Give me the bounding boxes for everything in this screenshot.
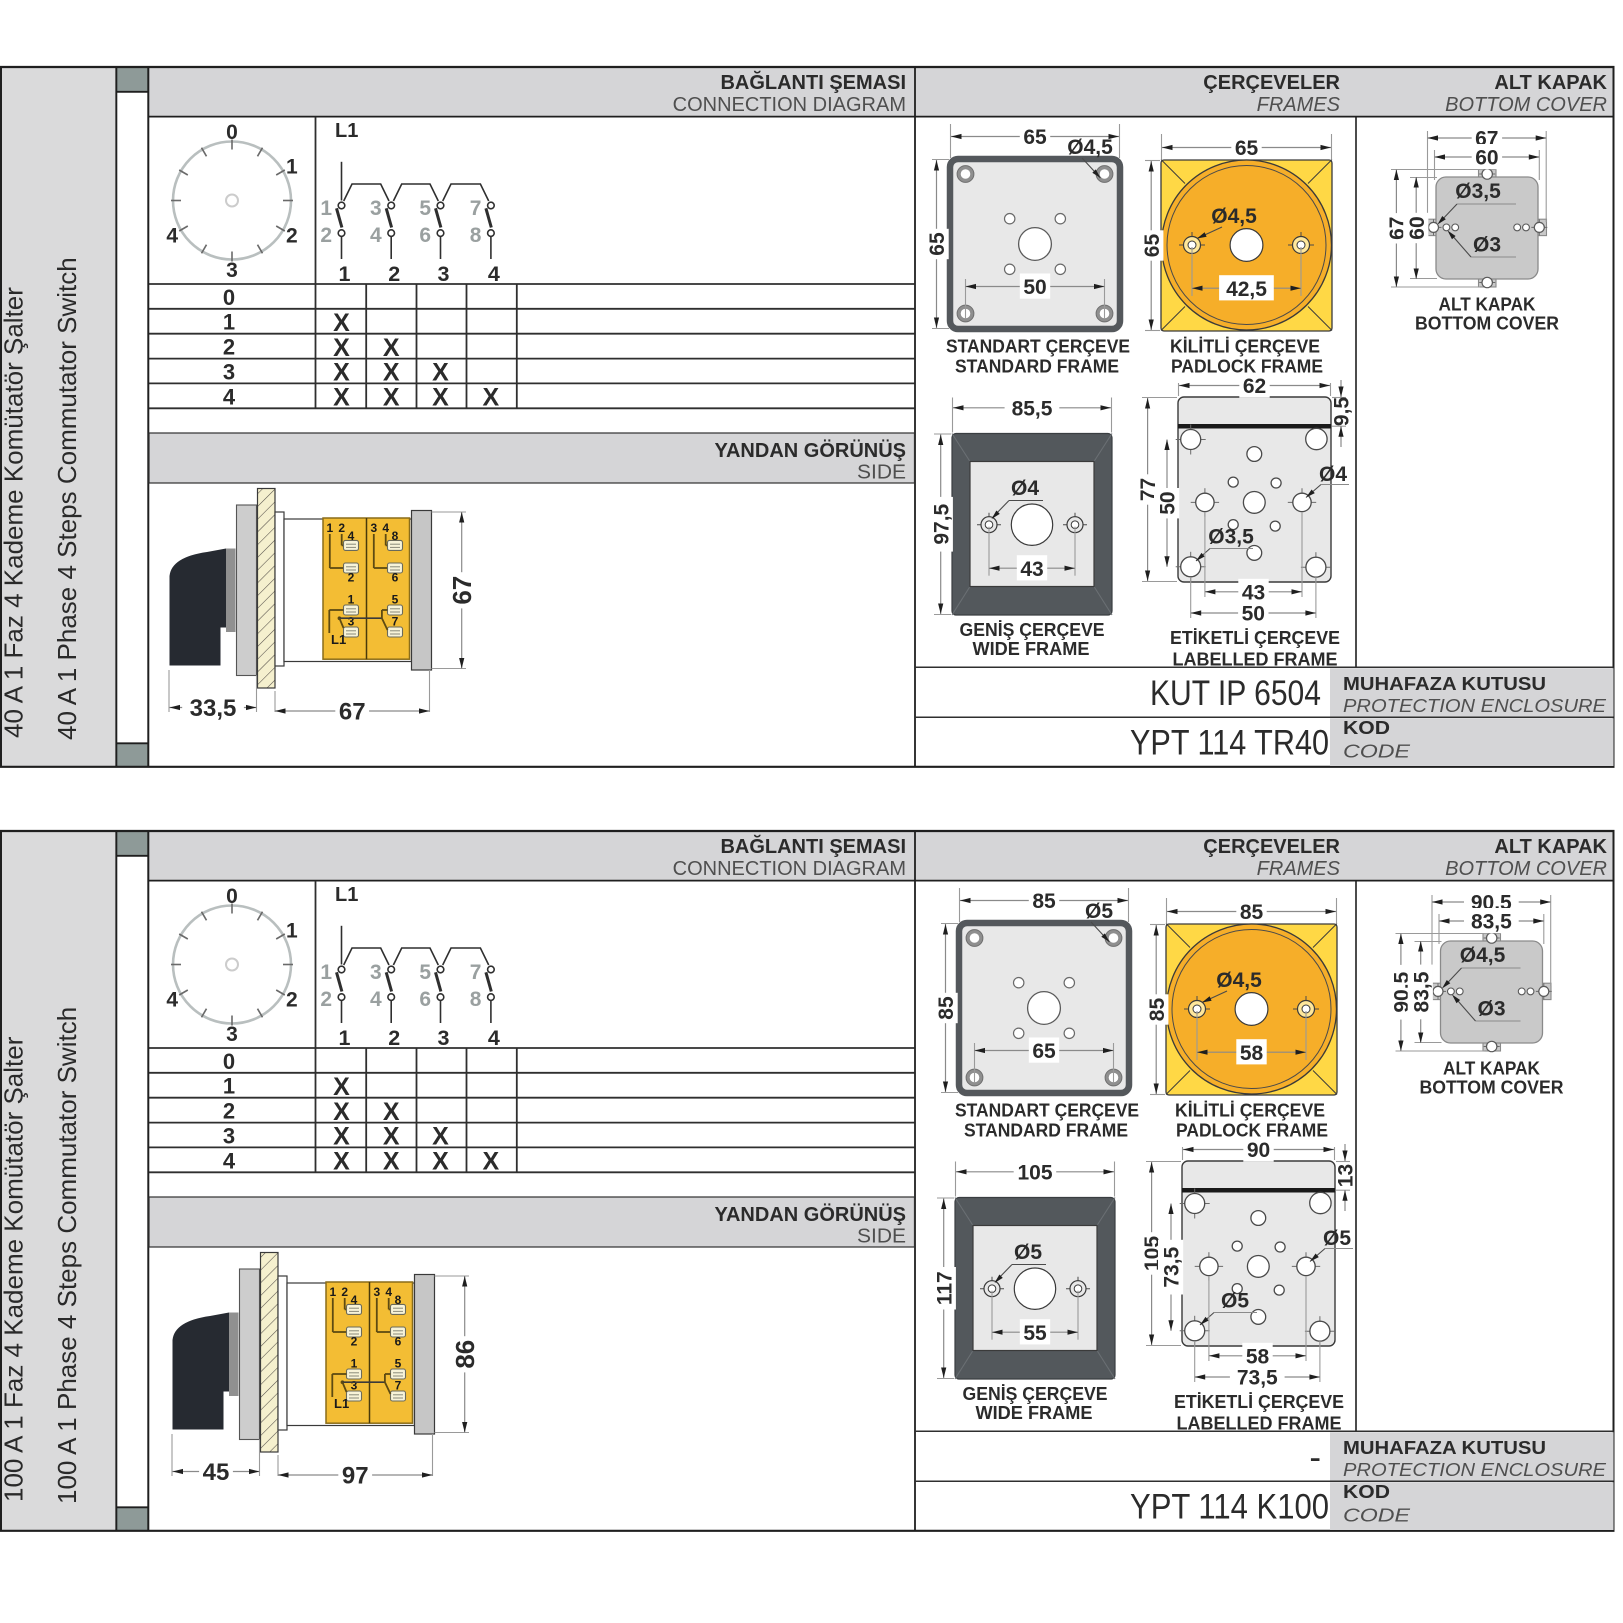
svg-text:2: 2 xyxy=(388,1026,400,1050)
svg-text:X: X xyxy=(333,1148,350,1176)
svg-text:ÇERÇEVELER: ÇERÇEVELER xyxy=(1203,72,1340,94)
svg-text:2: 2 xyxy=(341,1285,348,1299)
svg-text:50: 50 xyxy=(1157,491,1180,514)
svg-text:-: - xyxy=(1309,1438,1321,1477)
svg-text:YPT 114 K100: YPT 114 K100 xyxy=(1130,1488,1329,1527)
svg-text:65: 65 xyxy=(1141,234,1164,258)
svg-text:2: 2 xyxy=(320,988,332,1011)
svg-text:1: 1 xyxy=(286,156,298,179)
svg-text:Ø4: Ø4 xyxy=(1011,477,1039,500)
svg-text:CODE: CODE xyxy=(1343,1505,1411,1526)
svg-text:Ø4,5: Ø4,5 xyxy=(1211,205,1257,228)
svg-text:4: 4 xyxy=(385,1285,392,1299)
svg-text:4: 4 xyxy=(166,225,178,248)
svg-text:6: 6 xyxy=(419,988,431,1011)
svg-text:1: 1 xyxy=(348,593,355,607)
svg-text:Ø5: Ø5 xyxy=(1323,1227,1351,1250)
svg-text:2: 2 xyxy=(348,571,355,585)
svg-text:YPT 114 TR40: YPT 114 TR40 xyxy=(1130,724,1329,763)
svg-text:85: 85 xyxy=(1146,998,1169,1022)
svg-text:4: 4 xyxy=(370,988,382,1011)
svg-text:GENİŞ ÇERÇEVE: GENİŞ ÇERÇEVE xyxy=(960,620,1105,640)
svg-text:42,5: 42,5 xyxy=(1226,278,1267,301)
svg-text:3: 3 xyxy=(370,521,377,535)
svg-text:2: 2 xyxy=(223,335,235,360)
svg-text:X: X xyxy=(432,384,449,412)
svg-text:Ø4,5: Ø4,5 xyxy=(1067,136,1113,159)
svg-text:4: 4 xyxy=(223,1148,236,1173)
svg-text:1: 1 xyxy=(286,920,298,943)
svg-text:1: 1 xyxy=(223,1074,235,1099)
svg-text:97,5: 97,5 xyxy=(930,503,953,544)
svg-text:MUHAFAZA KUTUSU: MUHAFAZA KUTUSU xyxy=(1343,1438,1546,1458)
svg-text:4: 4 xyxy=(488,1026,500,1050)
svg-text:Ø3: Ø3 xyxy=(1473,234,1501,257)
svg-text:8: 8 xyxy=(470,224,482,247)
svg-text:6: 6 xyxy=(392,571,399,585)
svg-text:1: 1 xyxy=(339,262,351,286)
svg-text:40 A 1 Phase 4 Steps Commutato: 40 A 1 Phase 4 Steps Commutator Switch xyxy=(52,257,82,740)
svg-text:BOTTOM COVER: BOTTOM COVER xyxy=(1445,858,1607,880)
svg-text:X: X xyxy=(333,1073,350,1101)
svg-text:6: 6 xyxy=(395,1335,402,1349)
svg-text:Ø4,5: Ø4,5 xyxy=(1216,969,1262,992)
svg-text:BOTTOM COVER: BOTTOM COVER xyxy=(1445,94,1607,116)
svg-text:8: 8 xyxy=(392,529,399,543)
svg-text:CONNECTION DIAGRAM: CONNECTION DIAGRAM xyxy=(673,858,906,880)
svg-text:WIDE FRAME: WIDE FRAME xyxy=(976,1403,1093,1423)
svg-text:43: 43 xyxy=(1020,558,1043,581)
svg-text:58: 58 xyxy=(1240,1042,1264,1065)
svg-text:62: 62 xyxy=(1243,375,1266,398)
svg-text:1: 1 xyxy=(223,310,235,335)
svg-text:FRAMES: FRAMES xyxy=(1257,94,1341,116)
svg-text:3: 3 xyxy=(373,1285,380,1299)
svg-text:67: 67 xyxy=(447,576,477,605)
svg-text:1: 1 xyxy=(326,521,333,535)
svg-text:3: 3 xyxy=(438,1026,450,1050)
svg-text:ALT KAPAK: ALT KAPAK xyxy=(1494,72,1607,94)
svg-text:CODE: CODE xyxy=(1343,741,1411,762)
svg-text:73,5: 73,5 xyxy=(1237,1367,1278,1390)
svg-text:65: 65 xyxy=(1032,1040,1056,1063)
svg-text:KOD: KOD xyxy=(1343,718,1390,738)
svg-text:0: 0 xyxy=(226,121,238,144)
svg-text:4: 4 xyxy=(348,529,355,543)
svg-text:100 A 1 Phase 4 Steps Commutat: 100 A 1 Phase 4 Steps Commutator Switch xyxy=(52,1007,82,1504)
svg-text:X: X xyxy=(383,1123,400,1151)
svg-text:3: 3 xyxy=(226,259,238,282)
svg-text:85: 85 xyxy=(935,996,958,1020)
svg-text:Ø4,5: Ø4,5 xyxy=(1460,944,1506,967)
svg-text:STANDARD FRAME: STANDARD FRAME xyxy=(964,1121,1128,1141)
svg-text:L1: L1 xyxy=(334,1396,349,1411)
svg-text:STANDART ÇERÇEVE: STANDART ÇERÇEVE xyxy=(955,1101,1139,1121)
svg-text:1: 1 xyxy=(351,1357,358,1371)
svg-text:67: 67 xyxy=(339,699,366,726)
svg-text:9,5: 9,5 xyxy=(1331,397,1354,427)
svg-text:60: 60 xyxy=(1406,216,1429,239)
svg-text:7: 7 xyxy=(470,197,482,220)
svg-text:ETİKETLİ ÇERÇEVE: ETİKETLİ ÇERÇEVE xyxy=(1170,628,1340,648)
svg-text:Ø5: Ø5 xyxy=(1221,1290,1249,1313)
svg-text:4: 4 xyxy=(370,224,382,247)
svg-text:1: 1 xyxy=(329,1285,336,1299)
svg-text:ALT KAPAK: ALT KAPAK xyxy=(1439,295,1536,315)
svg-text:85,5: 85,5 xyxy=(1012,397,1053,420)
svg-text:5: 5 xyxy=(419,197,431,220)
svg-text:X: X xyxy=(432,1123,449,1151)
svg-text:4: 4 xyxy=(166,989,178,1012)
svg-text:X: X xyxy=(432,359,449,387)
svg-text:7: 7 xyxy=(392,615,399,629)
svg-text:85: 85 xyxy=(1240,901,1264,924)
svg-text:1: 1 xyxy=(339,1026,351,1050)
svg-text:8: 8 xyxy=(470,988,482,1011)
svg-text:3: 3 xyxy=(226,1023,238,1046)
svg-text:PROTECTION ENCLOSURE: PROTECTION ENCLOSURE xyxy=(1343,695,1607,716)
svg-text:Ø5: Ø5 xyxy=(1014,1241,1042,1264)
svg-text:Ø5: Ø5 xyxy=(1085,900,1113,923)
svg-text:3: 3 xyxy=(438,262,450,286)
svg-text:85: 85 xyxy=(1032,890,1056,913)
svg-text:1: 1 xyxy=(320,961,332,984)
svg-text:BOTTOM COVER: BOTTOM COVER xyxy=(1420,1078,1564,1098)
svg-text:86: 86 xyxy=(450,1340,480,1369)
svg-text:KUT IP 6504: KUT IP 6504 xyxy=(1150,674,1321,713)
svg-text:ALT KAPAK: ALT KAPAK xyxy=(1443,1059,1540,1079)
svg-text:X: X xyxy=(483,1148,500,1176)
svg-text:WIDE FRAME: WIDE FRAME xyxy=(973,639,1090,659)
svg-text:65: 65 xyxy=(1235,137,1259,160)
svg-text:117: 117 xyxy=(933,1271,956,1305)
svg-text:97: 97 xyxy=(342,1463,369,1490)
svg-text:45: 45 xyxy=(203,1459,230,1486)
svg-text:13: 13 xyxy=(1335,1164,1358,1187)
svg-text:X: X xyxy=(333,1123,350,1151)
svg-text:55: 55 xyxy=(1023,1322,1047,1345)
svg-text:X: X xyxy=(383,1148,400,1176)
svg-text:100 A 1 Faz 4 Kademe Komütatör: 100 A 1 Faz 4 Kademe Komütatör Şalter xyxy=(0,1036,29,1502)
svg-text:0: 0 xyxy=(226,885,238,908)
svg-text:2: 2 xyxy=(320,224,332,247)
svg-text:FRAMES: FRAMES xyxy=(1257,858,1341,880)
svg-text:4: 4 xyxy=(223,384,236,409)
svg-text:GENİŞ ÇERÇEVE: GENİŞ ÇERÇEVE xyxy=(963,1384,1108,1404)
svg-text:BAĞLANTI ŞEMASI: BAĞLANTI ŞEMASI xyxy=(720,834,906,858)
svg-text:X: X xyxy=(383,384,400,412)
svg-text:2: 2 xyxy=(338,521,345,535)
svg-text:LABELLED FRAME: LABELLED FRAME xyxy=(1173,650,1338,670)
svg-text:STANDART ÇERÇEVE: STANDART ÇERÇEVE xyxy=(946,337,1130,357)
svg-text:3: 3 xyxy=(351,1379,358,1393)
svg-text:X: X xyxy=(483,384,500,412)
svg-text:3: 3 xyxy=(348,615,355,629)
svg-text:X: X xyxy=(333,309,350,337)
svg-text:STANDARD FRAME: STANDARD FRAME xyxy=(955,357,1119,377)
svg-text:0: 0 xyxy=(223,1049,235,1074)
svg-text:ETİKETLİ ÇERÇEVE: ETİKETLİ ÇERÇEVE xyxy=(1174,1392,1344,1412)
svg-text:X: X xyxy=(383,334,400,362)
svg-text:2: 2 xyxy=(388,262,400,286)
svg-text:CONNECTION DIAGRAM: CONNECTION DIAGRAM xyxy=(673,94,906,116)
svg-text:3: 3 xyxy=(370,197,382,220)
svg-text:KOD: KOD xyxy=(1343,1482,1390,1502)
svg-text:2: 2 xyxy=(286,989,298,1012)
svg-text:33,5: 33,5 xyxy=(190,695,237,722)
svg-text:Ø3: Ø3 xyxy=(1477,998,1505,1021)
svg-text:4: 4 xyxy=(351,1293,358,1307)
svg-text:3: 3 xyxy=(370,961,382,984)
svg-text:X: X xyxy=(383,1098,400,1126)
svg-text:90: 90 xyxy=(1247,1139,1270,1162)
svg-text:L1: L1 xyxy=(335,884,358,906)
svg-text:40 A 1 Faz 4 Kademe Komütatör: 40 A 1 Faz 4 Kademe Komütatör Şalter xyxy=(0,287,29,738)
svg-text:SIDE: SIDE xyxy=(857,462,906,484)
svg-text:MUHAFAZA KUTUSU: MUHAFAZA KUTUSU xyxy=(1343,674,1546,694)
svg-text:5: 5 xyxy=(395,1357,402,1371)
svg-text:Ø3,5: Ø3,5 xyxy=(1455,180,1501,203)
svg-text:YANDAN GÖRÜNÜŞ: YANDAN GÖRÜNÜŞ xyxy=(714,439,906,462)
svg-text:7: 7 xyxy=(470,961,482,984)
svg-text:L1: L1 xyxy=(335,120,358,142)
svg-text:X: X xyxy=(333,334,350,362)
svg-text:X: X xyxy=(333,1098,350,1126)
svg-text:83,5: 83,5 xyxy=(1410,971,1433,1012)
svg-text:105: 105 xyxy=(1017,1161,1052,1184)
svg-text:KİLİTLİ ÇERÇEVE: KİLİTLİ ÇERÇEVE xyxy=(1175,1101,1325,1121)
svg-text:4: 4 xyxy=(382,521,389,535)
svg-text:5: 5 xyxy=(419,961,431,984)
svg-text:SIDE: SIDE xyxy=(857,1226,906,1248)
svg-text:7: 7 xyxy=(395,1379,402,1393)
svg-text:1: 1 xyxy=(320,197,332,220)
svg-text:65: 65 xyxy=(1023,126,1047,149)
svg-text:X: X xyxy=(432,1148,449,1176)
svg-text:YANDAN GÖRÜNÜŞ: YANDAN GÖRÜNÜŞ xyxy=(714,1203,906,1226)
svg-text:6: 6 xyxy=(419,224,431,247)
svg-text:2: 2 xyxy=(351,1335,358,1349)
svg-text:3: 3 xyxy=(223,1123,235,1148)
svg-text:5: 5 xyxy=(392,593,399,607)
svg-text:3: 3 xyxy=(223,359,235,384)
svg-text:83,5: 83,5 xyxy=(1471,911,1512,934)
svg-text:X: X xyxy=(333,384,350,412)
svg-text:50: 50 xyxy=(1242,603,1265,626)
svg-text:4: 4 xyxy=(488,262,500,286)
svg-text:BAĞLANTI ŞEMASI: BAĞLANTI ŞEMASI xyxy=(720,70,906,94)
svg-text:ALT KAPAK: ALT KAPAK xyxy=(1494,836,1607,858)
svg-text:65: 65 xyxy=(926,232,949,256)
svg-text:BOTTOM COVER: BOTTOM COVER xyxy=(1415,314,1559,334)
svg-text:Ø4: Ø4 xyxy=(1319,463,1347,486)
svg-text:2: 2 xyxy=(286,225,298,248)
svg-text:50: 50 xyxy=(1023,276,1046,299)
svg-text:LABELLED FRAME: LABELLED FRAME xyxy=(1177,1414,1342,1434)
svg-text:X: X xyxy=(383,359,400,387)
svg-text:8: 8 xyxy=(395,1293,402,1307)
svg-text:73,5: 73,5 xyxy=(1161,1246,1184,1287)
svg-text:2: 2 xyxy=(223,1099,235,1124)
svg-text:0: 0 xyxy=(223,285,235,310)
svg-text:PROTECTION ENCLOSURE: PROTECTION ENCLOSURE xyxy=(1343,1459,1607,1480)
svg-text:KİLİTLİ ÇERÇEVE: KİLİTLİ ÇERÇEVE xyxy=(1170,337,1320,357)
svg-text:X: X xyxy=(333,359,350,387)
svg-text:60: 60 xyxy=(1475,147,1498,170)
svg-text:L1: L1 xyxy=(331,632,346,647)
svg-text:Ø3,5: Ø3,5 xyxy=(1208,526,1254,549)
svg-text:ÇERÇEVELER: ÇERÇEVELER xyxy=(1203,836,1340,858)
